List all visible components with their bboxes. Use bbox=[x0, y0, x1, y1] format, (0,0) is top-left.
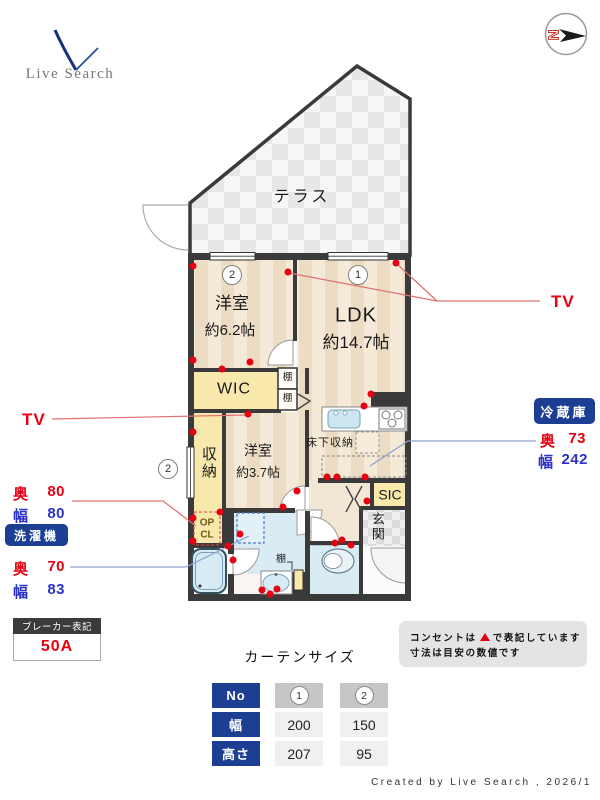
closet-label: 収納 bbox=[200, 446, 216, 480]
window-marker-1: 1 bbox=[348, 265, 368, 285]
compass: N bbox=[542, 10, 592, 60]
note-line2: 寸法は目安の数値です bbox=[410, 644, 587, 659]
curtain-height-2: 95 bbox=[340, 741, 388, 766]
fridge-depth: 奥 73 bbox=[540, 430, 586, 451]
outlet-dot bbox=[364, 498, 371, 505]
outlet-dot bbox=[361, 403, 368, 410]
fridge-tag: 冷蔵庫 bbox=[534, 398, 595, 424]
outlet-dot bbox=[190, 538, 197, 545]
outlet-dot bbox=[247, 359, 254, 366]
bedroom1-size: 約6.2帖 bbox=[205, 323, 256, 339]
floorplan-drawing bbox=[0, 0, 600, 800]
outlet-dot bbox=[230, 557, 237, 564]
outlet-dot bbox=[294, 488, 301, 495]
outlet-dot bbox=[190, 357, 197, 364]
logo-text: Live Search bbox=[20, 66, 120, 83]
curtain-height-label: 高さ bbox=[212, 741, 260, 766]
washer-tag: 洗濯機 bbox=[5, 524, 68, 546]
floorplan-page: Live Search N テラス 2 洋室 約6.2帖 1 LDK 約14.7… bbox=[0, 0, 600, 800]
sic-label: SIC bbox=[378, 488, 401, 503]
outlet-dot bbox=[393, 260, 400, 267]
outlet-dot bbox=[324, 474, 331, 481]
shelf-label-1: 棚 bbox=[283, 373, 293, 383]
shelf-label-3: 棚 bbox=[276, 555, 286, 566]
open-closet-label: OP CL bbox=[200, 518, 214, 541]
outlet-dot bbox=[190, 429, 197, 436]
tv-callout-right: TV bbox=[551, 292, 575, 312]
window-marker-2: 2 bbox=[222, 265, 242, 285]
tv-callout-left: TV bbox=[22, 410, 46, 430]
outlet-dot bbox=[225, 543, 232, 550]
washing-machine-space bbox=[237, 513, 264, 543]
outlet-dot bbox=[285, 269, 292, 276]
credit-text: Created by Live Search , 2026/1 bbox=[371, 777, 592, 788]
underfloor-storage-box bbox=[356, 432, 379, 453]
breaker-title: ブレーカー表記 bbox=[13, 618, 101, 634]
terrace-label: テラス bbox=[274, 190, 331, 207]
legend-note: コンセントは で表記しています 寸法は目安の数値です bbox=[399, 621, 587, 667]
terrace-area bbox=[143, 66, 410, 255]
washer-width: 幅 83 bbox=[13, 581, 65, 602]
closet-width: 幅 80 bbox=[13, 505, 65, 526]
curtain-col2-header: 2 bbox=[340, 683, 388, 708]
outlet-dot bbox=[237, 531, 244, 538]
outlet-dot bbox=[274, 586, 281, 593]
washer-depth: 奥 70 bbox=[13, 558, 65, 579]
outlet-dot bbox=[332, 540, 339, 547]
bedroom2-size: 約3.7帖 bbox=[236, 466, 280, 480]
compass-north-label: N bbox=[546, 30, 563, 41]
bedroom2-name: 洋室 bbox=[244, 444, 272, 459]
outlet-dot bbox=[190, 515, 197, 522]
curtain-col1-header: 1 bbox=[275, 683, 323, 708]
outlet-marker-icon bbox=[480, 633, 490, 641]
fridge-width: 幅 242 bbox=[538, 451, 588, 472]
ldk-size: 約14.7帖 bbox=[322, 334, 389, 352]
outlet-dot bbox=[245, 411, 252, 418]
live-search-logo: Live Search bbox=[18, 20, 128, 86]
curtain-height-1: 207 bbox=[275, 741, 323, 766]
curtain-table-title: カーテンサイズ bbox=[244, 647, 356, 667]
terrace-door-arc bbox=[143, 205, 188, 250]
underfloor-storage-label: 床下収納 bbox=[306, 438, 354, 450]
outlet-dot bbox=[280, 504, 287, 511]
outlet-dot bbox=[190, 263, 197, 270]
outlet-dot bbox=[334, 474, 341, 481]
outlet-dot bbox=[362, 474, 369, 481]
shelf-label-2: 棚 bbox=[283, 394, 293, 404]
wic-label: WIC bbox=[217, 382, 251, 399]
outlet-dot bbox=[259, 587, 266, 594]
breaker-value: 50A bbox=[13, 634, 101, 661]
outlet-dot bbox=[339, 537, 346, 544]
window-marker-side: 2 bbox=[158, 459, 178, 479]
breaker-box: ブレーカー表記 50A bbox=[13, 618, 101, 661]
outlet-dot bbox=[217, 509, 224, 516]
outlet-dot bbox=[348, 542, 355, 549]
curtain-no-header: No bbox=[212, 683, 260, 708]
entrance-label: 玄関 bbox=[370, 512, 384, 542]
curtain-width-label: 幅 bbox=[212, 712, 260, 737]
bedroom1-name: 洋室 bbox=[215, 295, 249, 313]
curtain-width-2: 150 bbox=[340, 712, 388, 737]
curtain-width-1: 200 bbox=[275, 712, 323, 737]
ldk-name: LDK bbox=[335, 306, 377, 327]
outlet-dot bbox=[267, 591, 274, 598]
closet-depth: 奥 80 bbox=[13, 483, 65, 504]
kitchen bbox=[322, 407, 407, 431]
outlet-dot bbox=[219, 366, 226, 373]
outlet-dot bbox=[368, 391, 375, 398]
